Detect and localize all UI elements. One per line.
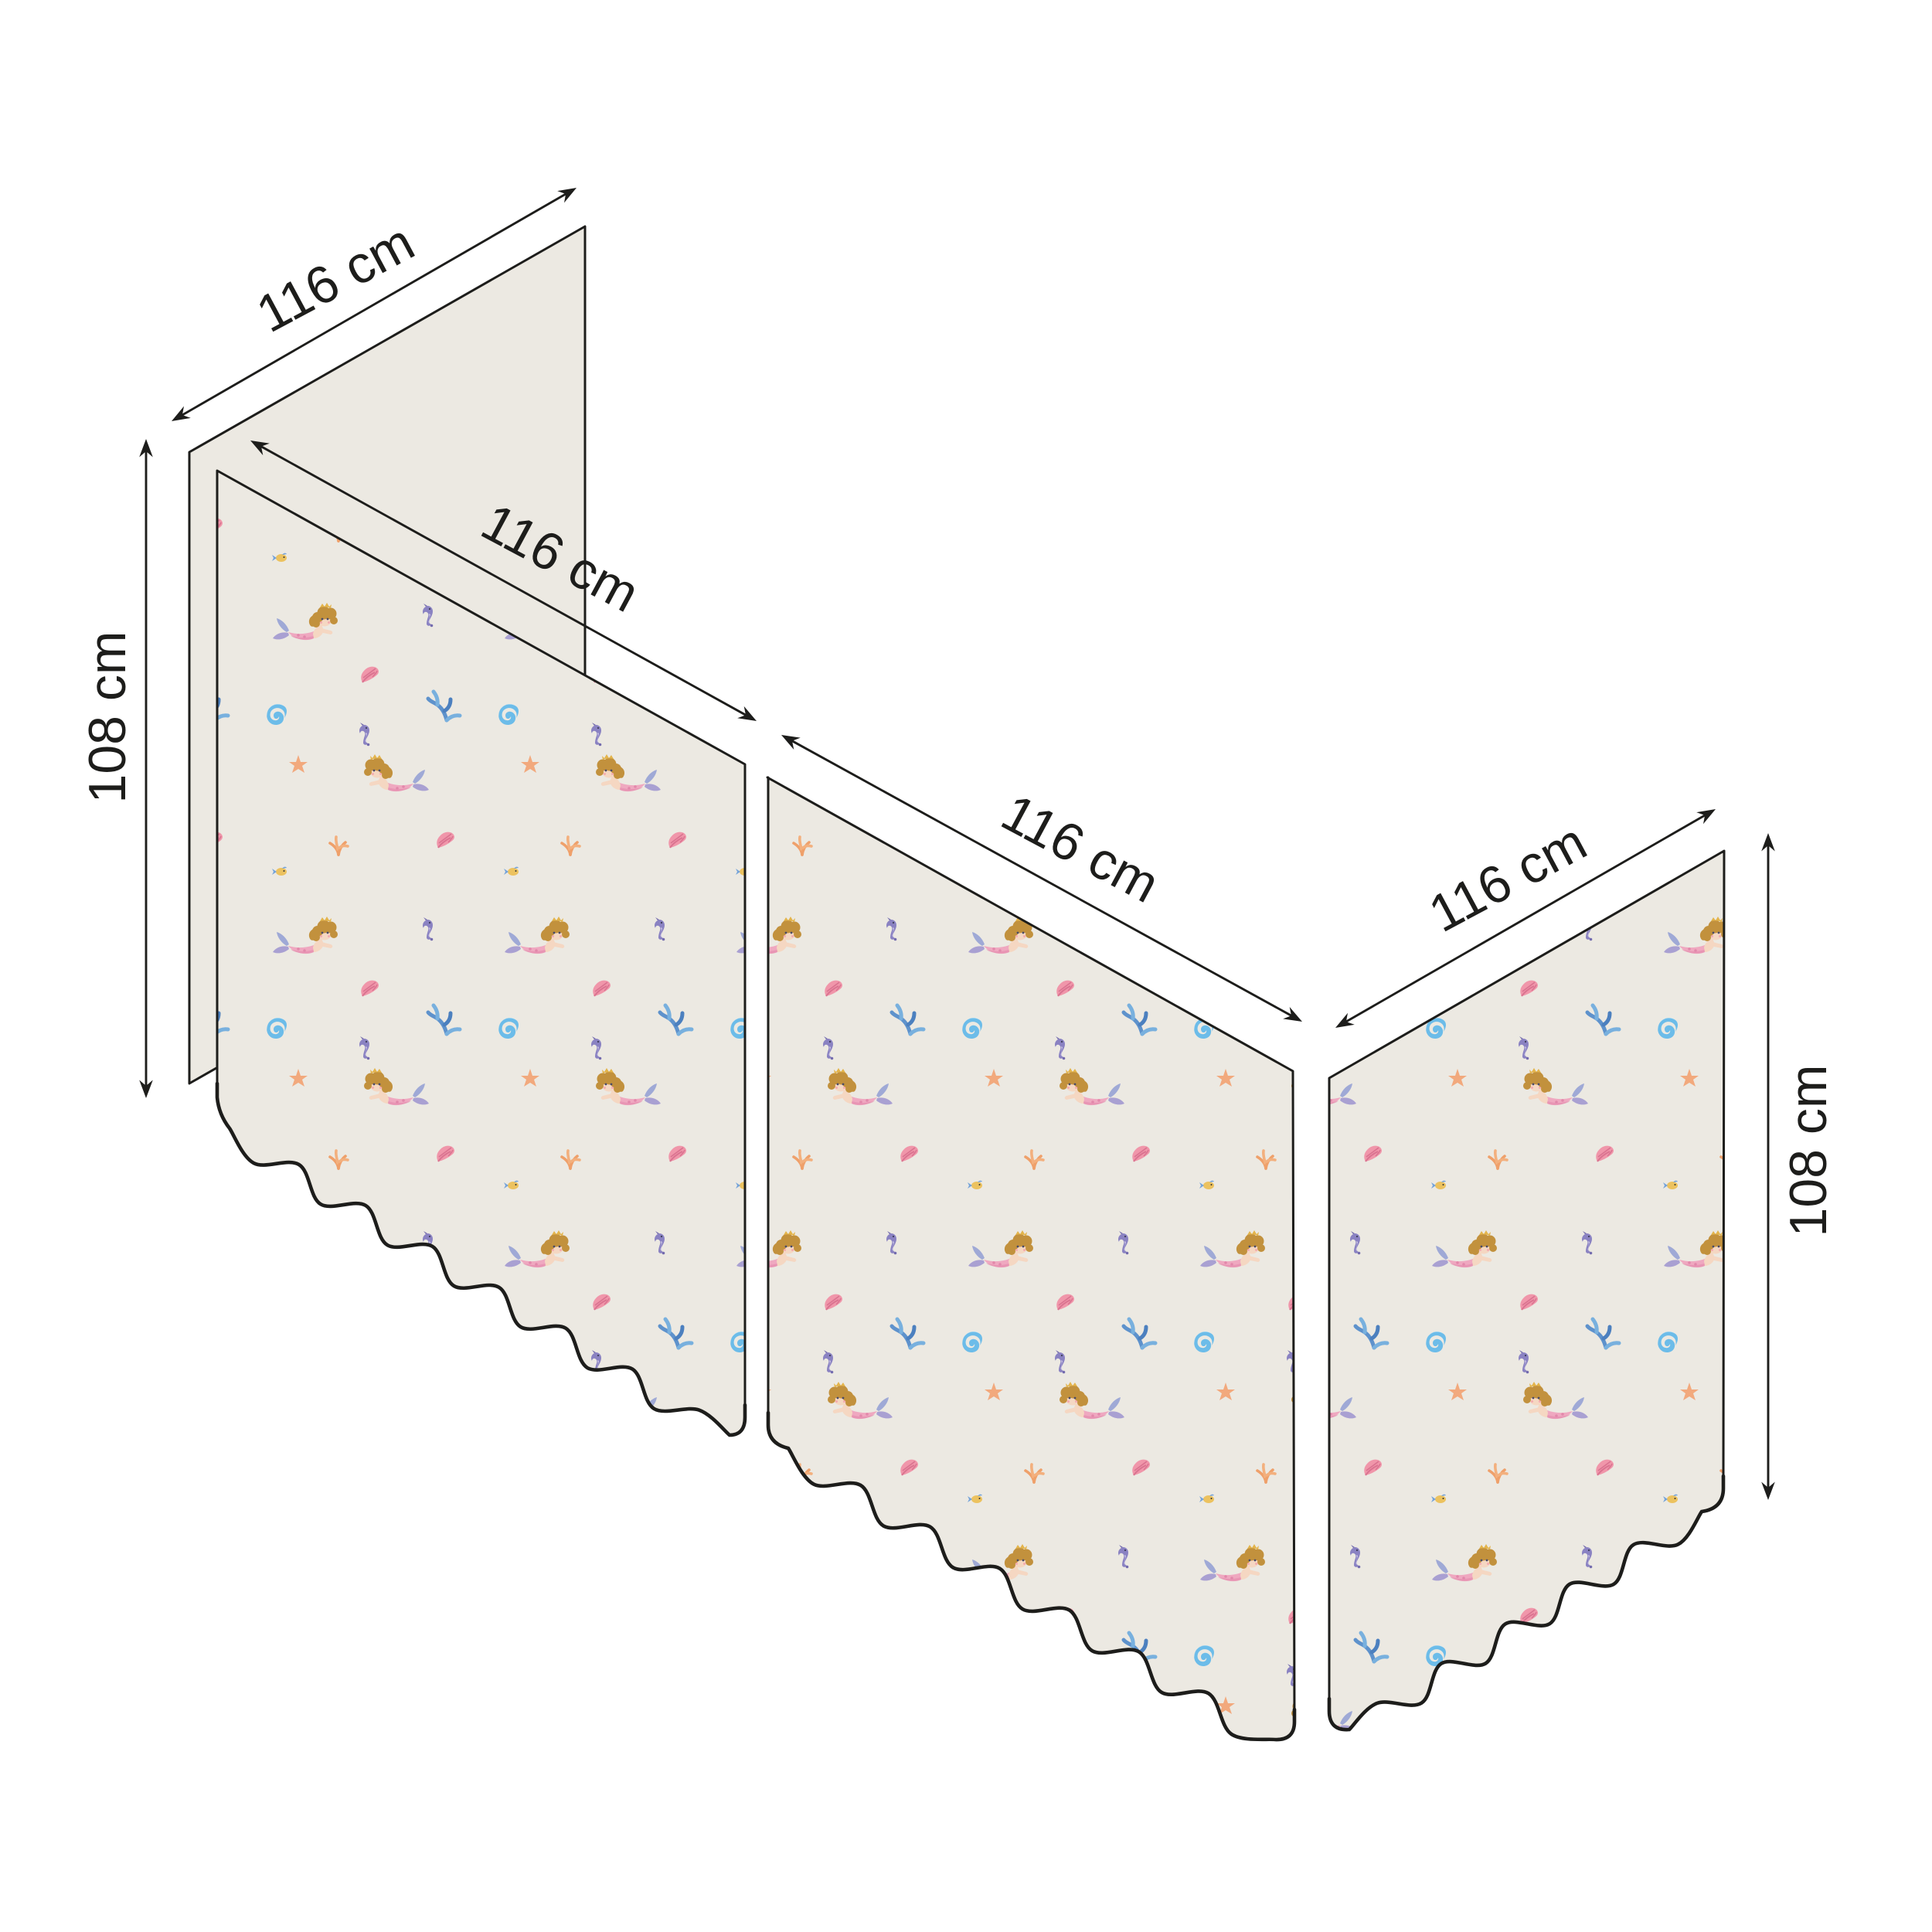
svg-text:108 cm: 108 cm (1779, 1065, 1838, 1237)
svg-text:108 cm: 108 cm (78, 631, 137, 804)
